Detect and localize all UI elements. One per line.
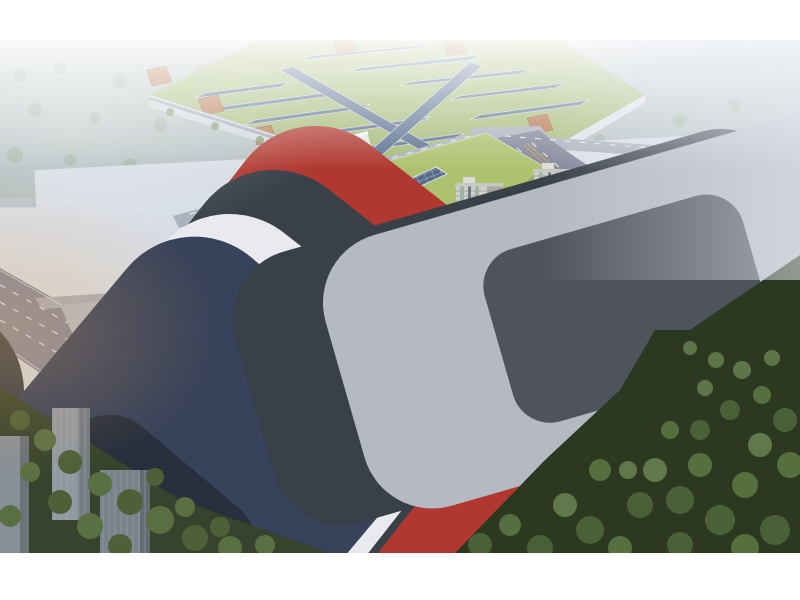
aerial-rendering: [0, 0, 800, 600]
letterbox-top: [0, 0, 800, 40]
letterbox-bottom: [0, 553, 800, 600]
rendering-canvas: Bird's-eye architectural rendering of a …: [0, 0, 800, 600]
